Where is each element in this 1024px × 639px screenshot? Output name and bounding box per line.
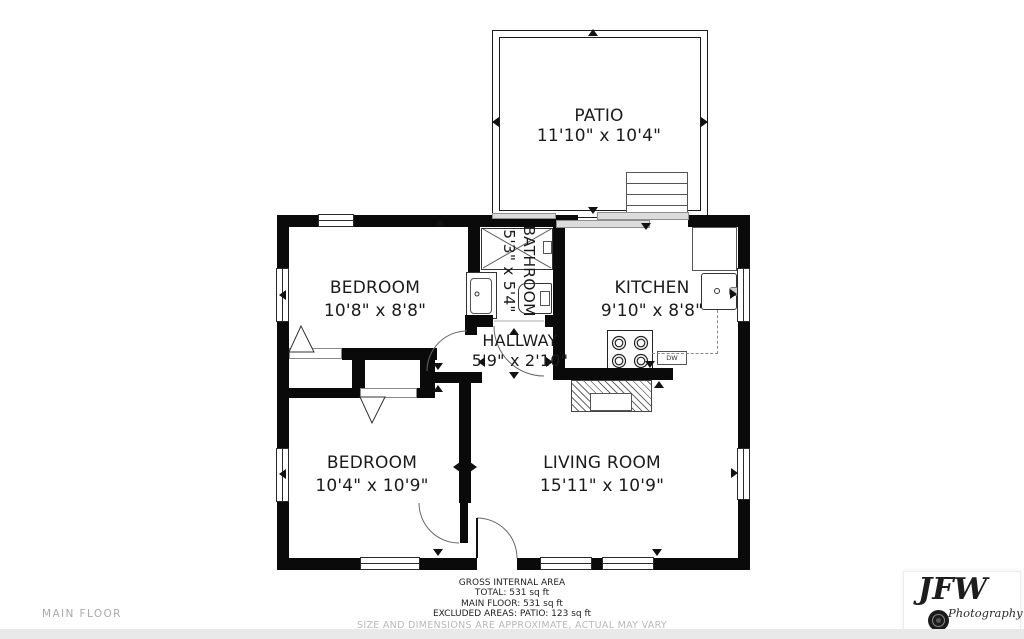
closet1-door-track: [289, 348, 342, 359]
wall-right: [738, 215, 750, 268]
total-area: TOTAL: 531 sq ft: [0, 588, 1024, 598]
room-dims: 9'10" x 8'8": [601, 300, 703, 323]
window-living-right: [737, 448, 750, 500]
room-name: PATIO: [537, 106, 661, 126]
wall-bottom: [277, 558, 360, 570]
room-name: BEDROOM: [315, 452, 428, 475]
wall-bottom: [592, 558, 602, 570]
room-dims: 5'9" x 2'10": [472, 351, 568, 371]
hallway-label: HALLWAY 5'9" x 2'10": [472, 331, 568, 371]
kitchen-label: KITCHEN 9'10" x 8'8": [601, 277, 703, 323]
kitchen-sink: [701, 273, 737, 310]
fireplace-opening: [590, 393, 632, 411]
closet2-bifold-door: [360, 397, 385, 423]
kitchen-counter-dashed: [717, 310, 718, 354]
sliding-door-panel: [556, 220, 650, 228]
logo-initials: JFW: [918, 572, 987, 607]
dishwasher-label: DW: [666, 354, 677, 362]
bedroom2-door-arc: [419, 503, 459, 543]
main-floor-area: MAIN FLOOR: 531 sq ft: [0, 599, 1024, 609]
patio-stairs: [626, 172, 688, 215]
sliding-door-panel: [597, 212, 689, 220]
bathtub-faucet: [543, 241, 552, 254]
room-dims: 10'4" x 10'9": [315, 475, 428, 498]
living-room-label: LIVING ROOM 15'11" x 10'9": [540, 452, 664, 498]
room-name: HALLWAY: [472, 331, 568, 351]
wall-kitchen-living: [553, 368, 673, 380]
area-summary: GROSS INTERNAL AREA TOTAL: 531 sq ft MAI…: [0, 578, 1024, 631]
bathroom-vanity: [466, 272, 497, 319]
wall-bottom: [654, 558, 750, 570]
bedroom2-label: BEDROOM 10'4" x 10'9": [315, 452, 428, 498]
refrigerator: [692, 227, 737, 271]
stair-step-line: [627, 205, 687, 206]
photographer-logo: JFW Photography: [903, 571, 1021, 636]
stair-step-line: [627, 194, 687, 195]
wall-closet-bottom: [289, 388, 360, 398]
window-bedroom2-bottom: [360, 557, 420, 570]
floor-plan: DW: [0, 0, 1024, 639]
wall-left: [277, 322, 289, 448]
room-name: BEDROOM: [324, 277, 426, 300]
stair-step-line: [627, 183, 687, 184]
bedroom1-label: BEDROOM 10'8" x 8'8": [324, 277, 426, 323]
closet2-door-track: [360, 388, 417, 398]
front-door-arc: [477, 518, 517, 558]
camera-lens-center: [936, 618, 941, 623]
closet-doors: [289, 326, 385, 423]
logo-subtitle: Photography: [948, 606, 1023, 620]
window-bedroom1-left: [276, 268, 289, 322]
window-living-bottom: [540, 557, 592, 570]
window-bedroom2-left: [276, 448, 289, 502]
patio-label: PATIO 11'10" x 10'4": [537, 106, 661, 146]
wall-bottom: [517, 558, 540, 570]
window-bedroom1-top: [318, 214, 354, 227]
stove: [607, 330, 653, 370]
wall-bathroom-left: [468, 227, 480, 272]
bottom-edge-strip: [0, 629, 1024, 639]
gross-internal-area-heading: GROSS INTERNAL AREA: [0, 578, 1024, 588]
fireplace: [571, 380, 652, 412]
bedroom2-door-leaf: [460, 503, 468, 543]
room-dims: 15'11" x 10'9": [540, 475, 664, 498]
floor-name-label: MAIN FLOOR: [42, 608, 122, 620]
room-dims: 11'10" x 10'4": [537, 126, 661, 146]
bathroom-sink: [470, 278, 492, 314]
wall-closet-bottom: [417, 388, 435, 398]
kitchen-counter-dashed: [652, 353, 718, 354]
toilet-tank: [540, 291, 550, 306]
excluded-areas: EXCLUDED AREAS: PATIO: 123 sq ft: [0, 609, 1024, 619]
wall-bathroom-bottom: [476, 315, 493, 327]
window-living-bottom: [602, 557, 654, 570]
wall-bottom: [420, 558, 477, 570]
wall-closet-separator: [352, 348, 365, 388]
wall-right: [738, 322, 750, 448]
camera-lens-icon: [928, 610, 949, 631]
wall-bedroom2-living: [459, 383, 471, 503]
room-name: LIVING ROOM: [540, 452, 664, 475]
bathroom-label: BATHROOM 5'3" x 5'4": [499, 206, 539, 336]
room-dims: 5'3" x 5'4": [499, 206, 519, 336]
window-kitchen-right: [737, 268, 750, 322]
room-dims: 10'8" x 8'8": [324, 300, 426, 323]
wall-left: [277, 215, 289, 268]
room-name: KITCHEN: [601, 277, 703, 300]
room-name: BATHROOM: [519, 206, 539, 336]
